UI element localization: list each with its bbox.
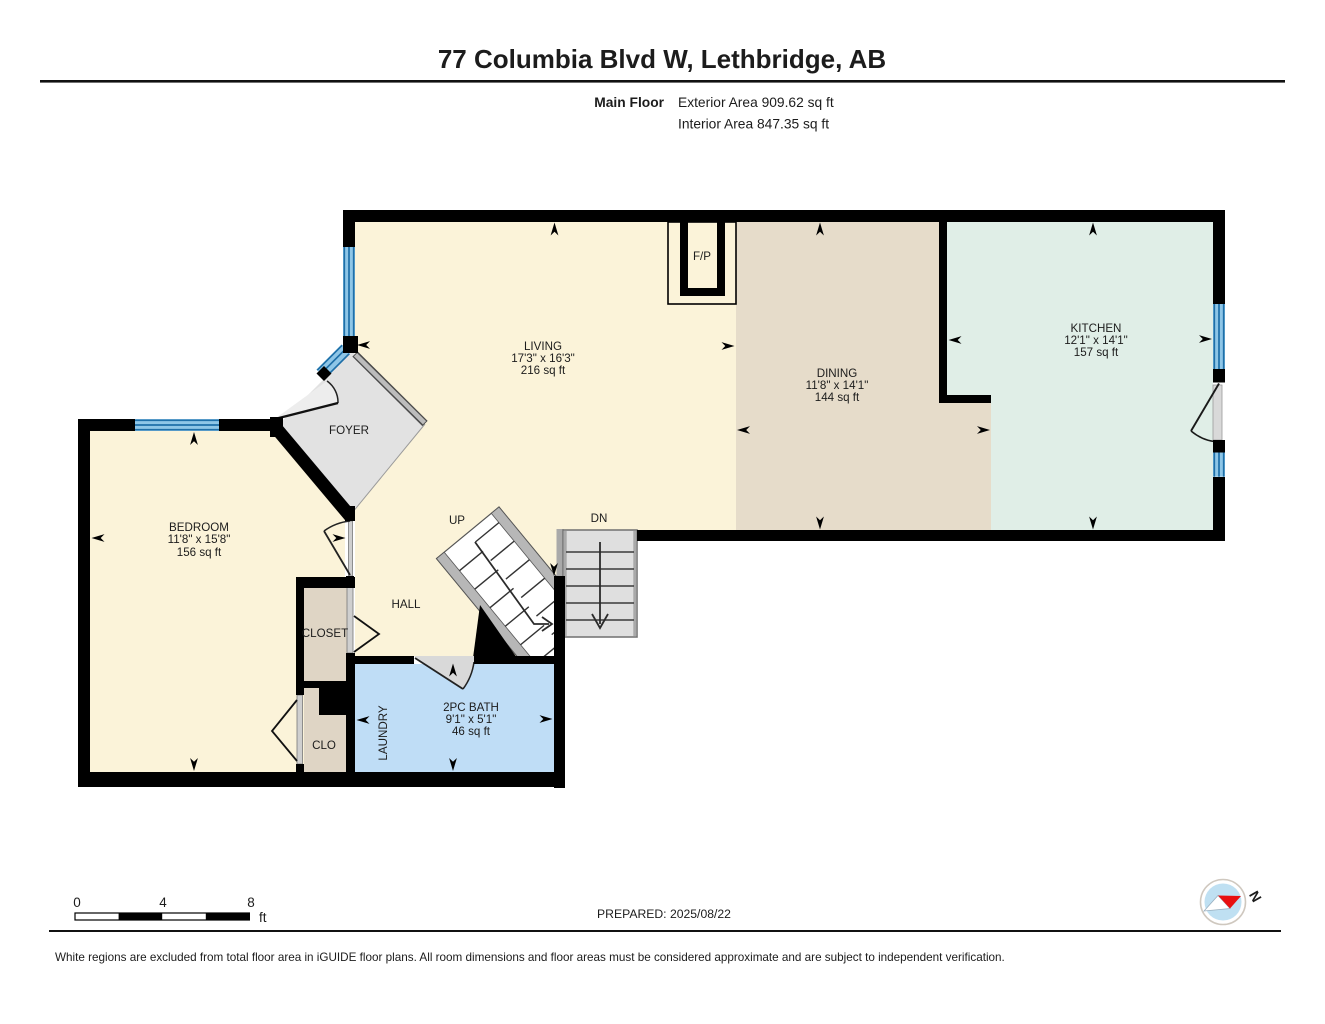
svg-text:Main Floor: Main Floor: [594, 95, 664, 110]
svg-text:11'8" x 15'8": 11'8" x 15'8": [168, 533, 231, 546]
svg-text:PREPARED: 2025/08/22: PREPARED: 2025/08/22: [597, 907, 731, 921]
svg-text:CLOSET: CLOSET: [302, 627, 348, 640]
svg-text:156 sq ft: 156 sq ft: [177, 546, 222, 559]
svg-text:F/P: F/P: [693, 250, 711, 263]
svg-text:Interior Area 847.35 sq ft: Interior Area 847.35 sq ft: [678, 117, 829, 132]
svg-text:White regions are excluded fro: White regions are excluded from total fl…: [55, 951, 1005, 964]
svg-text:157 sq ft: 157 sq ft: [1074, 346, 1119, 359]
svg-text:4: 4: [159, 895, 167, 910]
svg-text:Exterior Area 909.62 sq ft: Exterior Area 909.62 sq ft: [678, 95, 834, 110]
svg-text:0: 0: [73, 895, 81, 910]
svg-text:144 sq ft: 144 sq ft: [815, 391, 860, 404]
svg-text:216 sq ft: 216 sq ft: [521, 364, 566, 377]
svg-text:77 Columbia Blvd W, Lethbridge: 77 Columbia Blvd W, Lethbridge, AB: [438, 44, 886, 74]
svg-text:ft: ft: [259, 910, 267, 925]
svg-text:8: 8: [247, 895, 255, 910]
svg-text:LAUNDRY: LAUNDRY: [377, 705, 390, 760]
svg-text:HALL: HALL: [391, 598, 421, 611]
svg-text:DN: DN: [591, 512, 608, 525]
svg-text:CLO: CLO: [312, 739, 336, 752]
svg-text:UP: UP: [449, 514, 465, 527]
svg-text:FOYER: FOYER: [329, 424, 369, 437]
svg-text:46 sq ft: 46 sq ft: [452, 725, 491, 738]
